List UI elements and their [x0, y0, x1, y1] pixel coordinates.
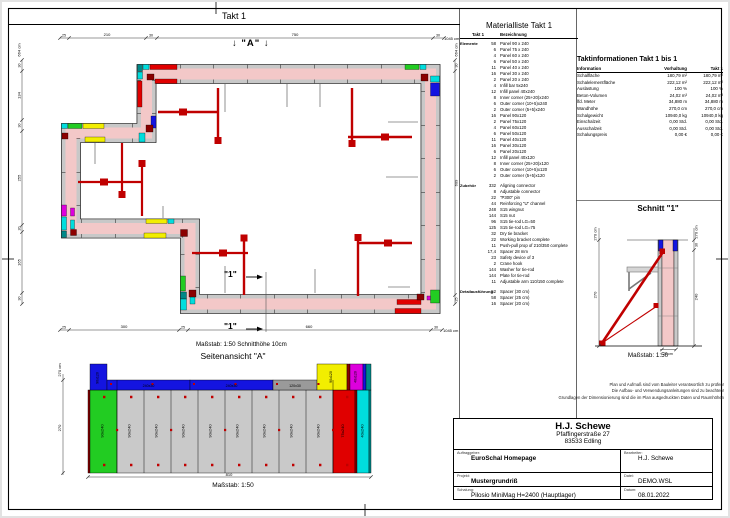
section-scale: Maßstab: 1:50 — [598, 352, 698, 359]
svg-text:664 cm: 664 cm — [454, 43, 459, 57]
svg-text:240: 240 — [694, 293, 699, 300]
svg-text:810: 810 — [226, 472, 233, 477]
svg-text:240x30: 240x30 — [226, 384, 238, 388]
material-group-label: Detailausführung — [460, 289, 493, 294]
side-view-scale: Maßstab: 1:50 — [158, 482, 308, 489]
file-cell: Datei: DEMO.WSL — [621, 473, 712, 485]
date-value: 08.01.2022 — [624, 492, 710, 499]
material-group-elements: Elemente 58Panel 90 x 2406Panel 75 x 240… — [460, 41, 578, 179]
project-cell: Projekt: Mustergrundriß — [454, 473, 621, 485]
title-block-row: Auftraggeber: EuroSchal Homepage Bearbei… — [454, 450, 712, 474]
svg-text:25: 25 — [455, 298, 459, 302]
disclaimer-line: Grundlagen der Dimensionierung sind die … — [540, 395, 724, 401]
material-group-detail: Detailausführung 52Spacer (30 cm)58Space… — [460, 289, 578, 307]
side-view: 90x240 90x240 90x240 90x240 90x240 90x24… — [57, 363, 373, 479]
section-dims — [597, 228, 695, 351]
svg-text:30: 30 — [434, 326, 438, 330]
svg-text:270: 270 — [57, 424, 62, 431]
section-view: 270 cm 270 270 cm 30 240 25 cm — [593, 225, 703, 356]
side-view-title: Seitenansicht "A" — [153, 351, 313, 361]
title-block: H.J. Schewe Pfaffingerstraße 27 83533 Ed… — [453, 418, 713, 500]
svg-text:30: 30 — [455, 64, 459, 68]
takt-info-row: Auslastung100 %100 % — [577, 86, 723, 93]
takt-header-band: Takt 1 — [8, 8, 460, 25]
svg-text:30: 30 — [436, 34, 440, 38]
svg-text:120x30: 120x30 — [289, 384, 301, 388]
project-value: Mustergrundriß — [457, 478, 618, 485]
company-city: 83533 Edling — [454, 439, 712, 446]
material-col-name: Bezeichnung — [496, 32, 527, 37]
client-value: EuroSchal Homepage — [457, 455, 618, 462]
file-value: DEMO.WSL — [624, 478, 710, 485]
takt-info-row: Schalungspreis0,00 €0,00 € — [577, 132, 723, 139]
material-list-header: Takt 1 Bezeichnung — [460, 32, 578, 39]
svg-text:270 cm: 270 cm — [57, 363, 62, 377]
disclaimer-note: Plan und Aufmaß sind vom Bauleiter veran… — [540, 382, 724, 401]
section-marker-1-bottom: "1" — [224, 321, 237, 331]
material-rows: 58Panel 90 x 2406Panel 75 x 2404Panel 60… — [460, 41, 578, 179]
svg-text:300: 300 — [121, 324, 128, 329]
svg-text:270: 270 — [593, 291, 598, 298]
svg-text:20: 20 — [18, 227, 22, 231]
svg-text:90x240: 90x240 — [208, 424, 213, 438]
svg-text:30: 30 — [149, 34, 153, 38]
takt-info-row: Schalelementfläche222,12 m²222,12 m² — [577, 80, 723, 87]
col-information: Information — [577, 66, 645, 71]
material-list-title: Materialliste Takt 1 — [460, 21, 578, 30]
svg-text:90x120: 90x120 — [329, 371, 333, 383]
svg-text:210: 210 — [104, 32, 111, 37]
material-group-accessories: Zubehör 332Aligning connector8Adjustable… — [460, 183, 578, 285]
material-col-qty: Takt 1 — [460, 32, 496, 37]
svg-text:750: 750 — [292, 32, 299, 37]
plan-scale-note: Maßstab: 1:50 Schnitthöhe 10cm — [196, 341, 287, 348]
svg-text:270 cm: 270 cm — [593, 227, 598, 241]
formwork-plan-sheet: 25 210 30 750 30 1045 cm 25 300 25 660 3… — [0, 0, 730, 518]
svg-text:90x240: 90x240 — [154, 424, 159, 438]
title-block-row: Schalung: Pilosio MiniMag H=2400 (Hauptl… — [454, 487, 712, 499]
svg-text:90x240: 90x240 — [100, 424, 105, 438]
material-row: 16Spacer (20 cm) — [460, 301, 578, 307]
svg-text:90x120: 90x120 — [96, 372, 100, 384]
takt-info-row: lfd. Meter34,880 m34,880 m — [577, 99, 723, 106]
material-group-label: Elemente — [460, 41, 478, 46]
takt-info-row: Einschalzeit0,00 Std.0,00 Std. — [577, 119, 723, 126]
material-row: 11Adjustable arm 110/150 complete — [460, 279, 578, 285]
client-cell: Auftraggeber: EuroSchal Homepage — [454, 450, 621, 473]
svg-text:30: 30 — [18, 124, 22, 128]
svg-text:90x240: 90x240 — [181, 424, 186, 438]
formwork-cell: Schalung: Pilosio MiniMag H=2400 (Hauptl… — [454, 487, 621, 499]
svg-text:664 cm: 664 cm — [17, 43, 22, 57]
svg-text:240x30: 240x30 — [143, 384, 155, 388]
view-marker-a: ↓ "A" ↓ — [232, 38, 270, 49]
section-title: Schnitt "1" — [602, 204, 714, 213]
section-marker-1-top: "1" — [224, 269, 237, 279]
svg-text:609: 609 — [454, 179, 459, 186]
svg-text:30: 30 — [18, 297, 22, 301]
takt-info-row: Wandhöhe270,0 cm270,0 cm — [577, 106, 723, 113]
takt-info-rows: Schalfläche180,79 m²180,79 m²Schalelemen… — [577, 73, 723, 139]
formwork-value: Pilosio MiniMag H=2400 (Hauptlager) — [457, 492, 618, 499]
editor-cell: Bearbeiter: H.J. Schewe — [621, 450, 712, 473]
title-block-row: Projekt: Mustergrundriß Datei: DEMO.WSL — [454, 473, 712, 486]
svg-text:134: 134 — [17, 91, 22, 98]
editor-value: H.J. Schewe — [624, 455, 710, 462]
svg-text:1045 cm: 1045 cm — [443, 328, 459, 333]
svg-text:90x240: 90x240 — [262, 424, 267, 438]
svg-text:25: 25 — [62, 326, 66, 330]
material-row: 2Outer corner (5+5)x120 — [460, 173, 578, 179]
svg-text:25: 25 — [181, 326, 185, 330]
takt-info-row: Ausschalzeit0,00 Std.0,00 Std. — [577, 126, 723, 133]
svg-text:255: 255 — [17, 174, 22, 181]
takt-info-table: Taktinformationen Takt 1 bis 1 Informati… — [577, 56, 723, 139]
material-rows: 332Aligning connector8Adjustable connect… — [460, 183, 578, 285]
floor-plan — [62, 65, 440, 333]
svg-text:30: 30 — [695, 243, 699, 247]
material-list: Materialliste Takt 1 Takt 1 Bezeichnung … — [460, 21, 578, 311]
svg-text:90x240: 90x240 — [127, 424, 132, 438]
col-takt1: Takt 1 — [687, 66, 723, 71]
col-vorhaltung: Vorhaltung — [645, 66, 687, 71]
takt-info-row: Schalgewicht10940,0 kg10940,0 kg — [577, 113, 723, 120]
svg-text:90x240: 90x240 — [289, 424, 294, 438]
takt-info-header: Information Vorhaltung Takt 1 — [577, 66, 723, 73]
svg-text:40x120: 40x120 — [354, 371, 358, 383]
title-block-header: H.J. Schewe Pfaffingerstraße 27 83533 Ed… — [454, 419, 712, 450]
svg-text:75x240: 75x240 — [340, 424, 345, 438]
svg-text:660: 660 — [306, 324, 313, 329]
svg-text:1045 cm: 1045 cm — [444, 36, 460, 41]
takt-header-label: Takt 1 — [222, 11, 246, 21]
takt-info-title: Taktinformationen Takt 1 bis 1 — [577, 56, 723, 63]
svg-text:165: 165 — [17, 258, 22, 265]
date-cell: Datum: 08.01.2022 — [621, 487, 712, 499]
takt-info-row: Schalfläche180,79 m²180,79 m² — [577, 73, 723, 80]
svg-text:270 cm: 270 cm — [694, 225, 699, 239]
svg-text:40x240: 40x240 — [360, 424, 365, 438]
working-bracket — [627, 267, 658, 291]
takt-info-row: Beton-Volumen24,02 m³24,02 m³ — [577, 93, 723, 100]
svg-text:25: 25 — [62, 34, 66, 38]
svg-text:30: 30 — [18, 64, 22, 68]
push-pull-prop — [599, 249, 665, 347]
svg-text:90x240: 90x240 — [235, 424, 240, 438]
material-group-label: Zubehör — [460, 183, 476, 188]
svg-text:90x240: 90x240 — [316, 424, 321, 438]
